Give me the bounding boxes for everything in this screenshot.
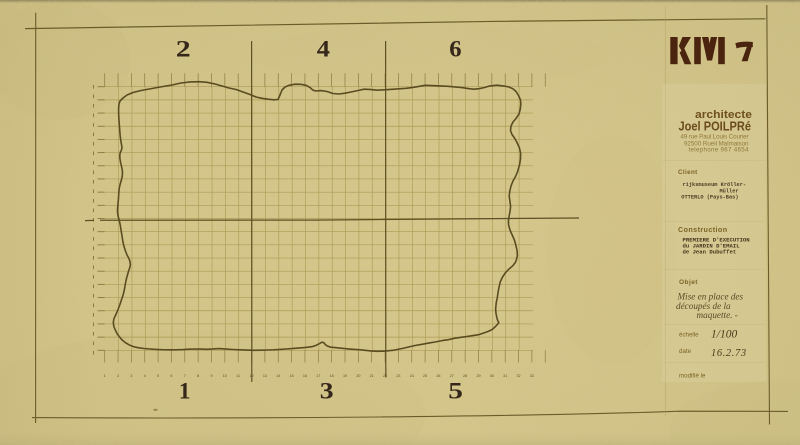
- svg-text:22: 22: [383, 374, 387, 378]
- svg-text:13: 13: [263, 374, 267, 378]
- svg-text:11: 11: [236, 374, 240, 378]
- svg-text:maquette. -: maquette. -: [697, 310, 738, 320]
- svg-text:16: 16: [303, 374, 307, 378]
- svg-text:Objet: Objet: [679, 279, 698, 286]
- svg-text:3: 3: [130, 374, 132, 378]
- svg-text:2: 2: [176, 36, 191, 62]
- svg-text:10: 10: [223, 374, 227, 378]
- svg-text:3: 3: [320, 378, 334, 405]
- svg-text:4: 4: [317, 37, 330, 62]
- svg-text:Client: Client: [678, 169, 698, 176]
- svg-text:1: 1: [179, 379, 191, 405]
- svg-text:date: date: [679, 348, 692, 355]
- svg-text:6: 6: [449, 37, 461, 62]
- svg-text:Müller: Müller: [720, 189, 739, 195]
- svg-text:28: 28: [463, 374, 467, 378]
- svg-text:5: 5: [157, 374, 159, 378]
- svg-text:32: 32: [516, 374, 520, 378]
- svg-text:8: 8: [197, 374, 199, 378]
- svg-text:19: 19: [343, 374, 347, 378]
- svg-text:24: 24: [410, 374, 414, 378]
- svg-text:30: 30: [490, 374, 494, 378]
- svg-text:16.2.73: 16.2.73: [711, 348, 747, 359]
- svg-text:2: 2: [117, 374, 119, 378]
- svg-text:33: 33: [530, 374, 534, 378]
- svg-text:OTTERLO (Pays-Bas): OTTERLO (Pays-Bas): [681, 195, 738, 201]
- svg-text:6: 6: [170, 374, 172, 378]
- svg-text:21: 21: [370, 374, 374, 378]
- svg-text:échelle: échelle: [679, 332, 699, 339]
- svg-text:9: 9: [210, 374, 212, 378]
- svg-text:14: 14: [276, 374, 280, 378]
- svg-text:15: 15: [290, 374, 294, 378]
- svg-text:26: 26: [436, 374, 440, 378]
- svg-text:de Jean Dubuffet: de Jean Dubuffet: [683, 248, 737, 255]
- svg-text:telephone 967 4654: telephone 967 4654: [689, 147, 750, 154]
- svg-text:5: 5: [448, 377, 463, 404]
- svg-text:25: 25: [423, 374, 427, 378]
- svg-text:Construction: Construction: [678, 225, 728, 234]
- svg-text:31: 31: [503, 374, 507, 378]
- svg-text:rijksmuseum Kröller-: rijksmuseum Kröller-: [683, 182, 747, 188]
- svg-text:23: 23: [396, 374, 400, 378]
- svg-text:Joel POILPRé: Joel POILPRé: [679, 119, 752, 133]
- svg-text:20: 20: [356, 374, 360, 378]
- svg-text:1/100: 1/100: [711, 329, 737, 341]
- svg-text:29: 29: [476, 374, 480, 378]
- svg-text:4: 4: [144, 374, 146, 378]
- svg-text:7: 7: [184, 374, 186, 378]
- svg-text:modifié le: modifié le: [679, 372, 706, 379]
- svg-text:1: 1: [104, 374, 106, 378]
